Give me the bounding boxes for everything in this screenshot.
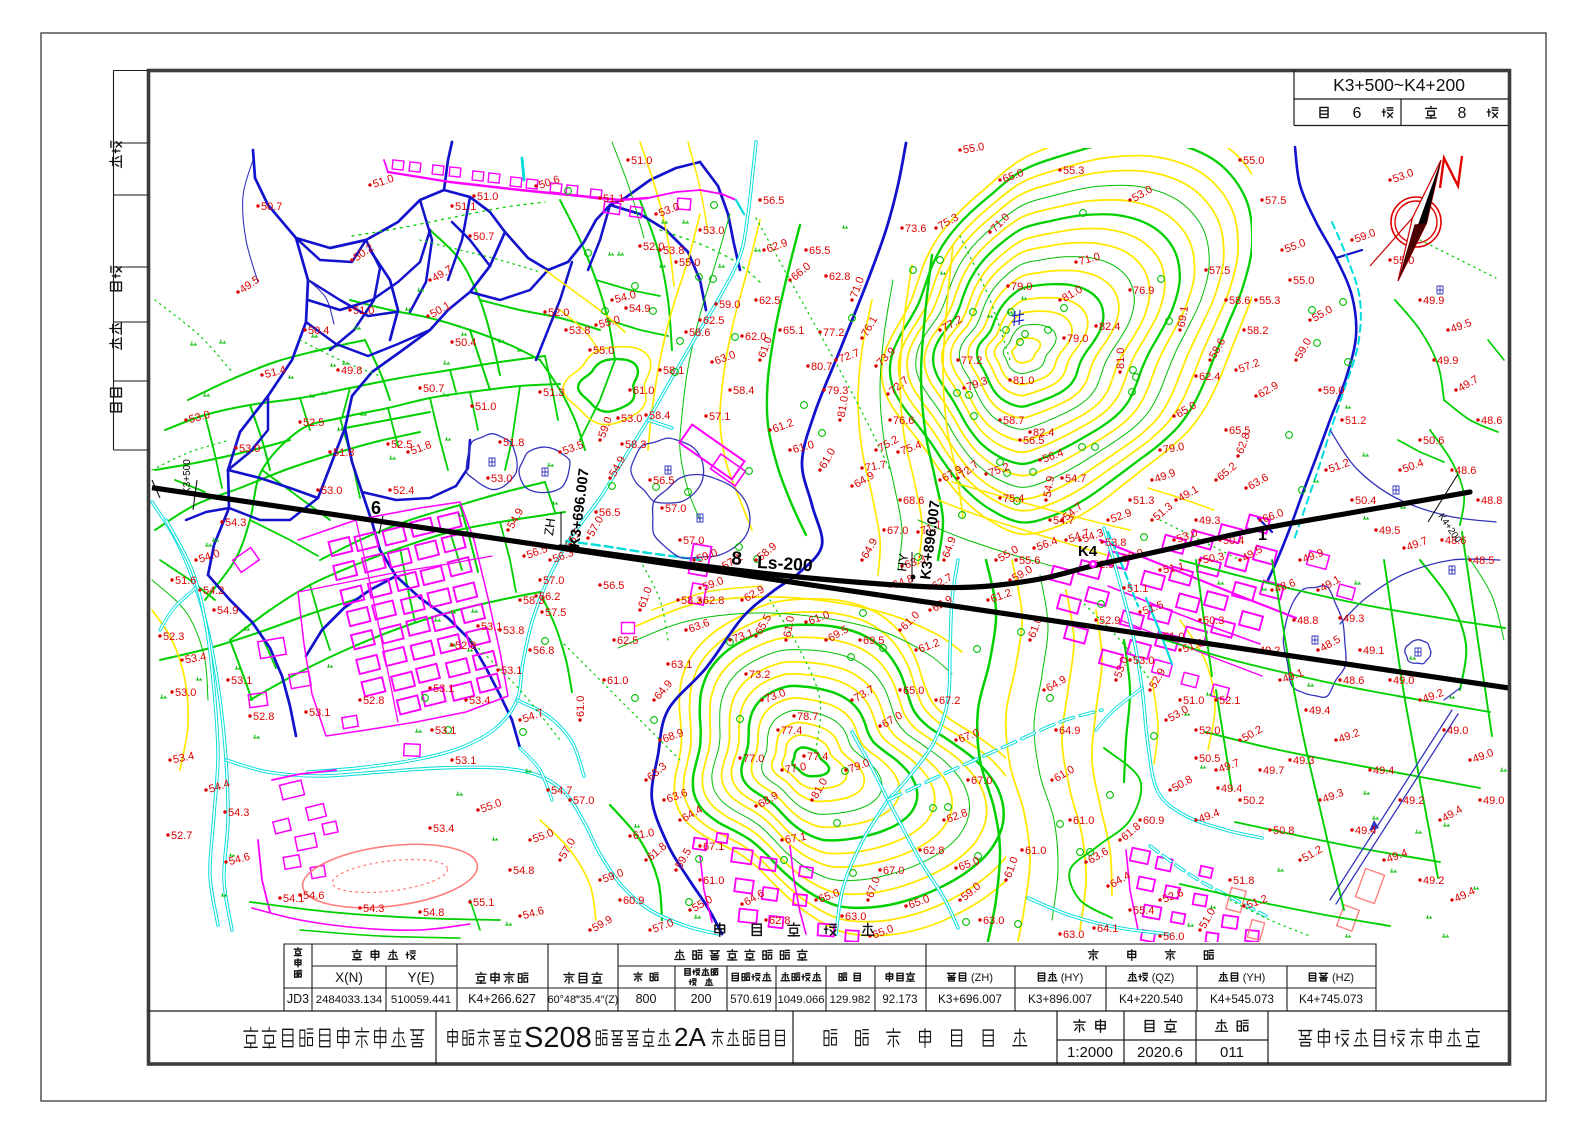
svg-text:67.1: 67.1 <box>703 841 724 853</box>
svg-text:011: 011 <box>1220 1044 1244 1061</box>
svg-text:78.7: 78.7 <box>797 711 818 723</box>
svg-text:51.6: 51.6 <box>175 575 196 587</box>
svg-text:800: 800 <box>636 992 657 1006</box>
svg-text:52.3: 52.3 <box>163 631 184 643</box>
svg-text:53.8: 53.8 <box>1105 537 1126 549</box>
svg-text:56.5: 56.5 <box>1023 435 1044 447</box>
svg-text:129.982: 129.982 <box>830 994 871 1006</box>
svg-text:58.6: 58.6 <box>1229 295 1250 307</box>
svg-text:58.2: 58.2 <box>1247 325 1268 337</box>
svg-text:79.3: 79.3 <box>827 385 848 397</box>
svg-text:57.5: 57.5 <box>1265 195 1286 207</box>
svg-text:54.7: 54.7 <box>551 785 572 797</box>
svg-text:52.4: 52.4 <box>393 485 414 497</box>
svg-text:48.8: 48.8 <box>1481 495 1502 507</box>
svg-text:62.8: 62.8 <box>703 595 724 607</box>
svg-text:54.8: 54.8 <box>513 865 534 877</box>
svg-text:53.1: 53.1 <box>481 621 502 633</box>
svg-text:55.3: 55.3 <box>1063 165 1084 177</box>
svg-text:51.0: 51.0 <box>631 155 652 167</box>
svg-text:54.8: 54.8 <box>423 907 444 919</box>
svg-text:49.9: 49.9 <box>1423 295 1444 307</box>
svg-text:67.2: 67.2 <box>939 695 960 707</box>
svg-text:(ZH): (ZH) <box>971 972 993 984</box>
svg-text:53.0: 53.0 <box>491 473 512 485</box>
svg-text:59.0: 59.0 <box>1323 385 1344 397</box>
svg-text:76.9: 76.9 <box>1133 285 1154 297</box>
svg-text:56.5: 56.5 <box>599 507 620 519</box>
svg-text:76.6: 76.6 <box>893 415 914 427</box>
svg-text:2484033.134: 2484033.134 <box>316 994 383 1006</box>
svg-text:52.8: 52.8 <box>253 711 274 723</box>
svg-text:53.0: 53.0 <box>239 443 260 455</box>
svg-text:Y(E): Y(E) <box>408 970 435 985</box>
svg-text:54.7: 54.7 <box>1065 473 1086 485</box>
svg-text:K4: K4 <box>1078 543 1098 560</box>
svg-text:1: 1 <box>1258 527 1267 544</box>
svg-text:55.0: 55.0 <box>679 257 700 269</box>
svg-text:77.4: 77.4 <box>781 725 802 737</box>
svg-text:48.5: 48.5 <box>1473 555 1494 567</box>
svg-text:51.3: 51.3 <box>543 387 564 399</box>
svg-text:58.3: 58.3 <box>523 595 544 607</box>
svg-text:65.0: 65.0 <box>903 685 924 697</box>
svg-text:62.5: 62.5 <box>617 635 638 647</box>
svg-text:48.6: 48.6 <box>1343 675 1364 687</box>
svg-text:54.3: 54.3 <box>363 903 384 915</box>
svg-text:K3+696.007: K3+696.007 <box>938 992 1002 1006</box>
svg-text:57.5: 57.5 <box>545 607 566 619</box>
svg-text:2020.6: 2020.6 <box>1137 1044 1183 1061</box>
svg-text:64.9: 64.9 <box>1059 725 1080 737</box>
svg-text:69.5: 69.5 <box>863 635 884 647</box>
svg-text:52.9: 52.9 <box>1099 615 1120 627</box>
svg-text:51.0: 51.0 <box>477 191 498 203</box>
svg-text:59.0: 59.0 <box>719 299 740 311</box>
svg-text:55.4: 55.4 <box>1133 905 1154 917</box>
svg-text:K3+896.007: K3+896.007 <box>1028 992 1092 1006</box>
svg-text:58.3: 58.3 <box>625 439 646 451</box>
svg-text:49.8: 49.8 <box>341 365 362 377</box>
svg-text:51.0: 51.0 <box>475 401 496 413</box>
svg-text:K3+500: K3+500 <box>182 459 193 494</box>
svg-text:55.3: 55.3 <box>1259 295 1280 307</box>
svg-text:56.0: 56.0 <box>1163 931 1184 943</box>
svg-text:49.2: 49.2 <box>1403 795 1424 807</box>
svg-text:53.1: 53.1 <box>501 665 522 677</box>
svg-text:Ls-200: Ls-200 <box>757 552 814 575</box>
svg-text:49.4: 49.4 <box>1221 783 1242 795</box>
svg-text:65.1: 65.1 <box>783 325 804 337</box>
svg-text:53.8: 53.8 <box>569 325 590 337</box>
svg-text:57.0: 57.0 <box>573 795 594 807</box>
svg-text:50.2: 50.2 <box>1243 795 1264 807</box>
svg-text:51.8: 51.8 <box>503 437 524 449</box>
svg-text:54.3: 54.3 <box>228 807 249 819</box>
svg-text:53.1: 53.1 <box>455 755 476 767</box>
svg-text:6: 6 <box>371 498 381 518</box>
svg-text:52.8: 52.8 <box>455 640 476 652</box>
svg-text:50.7: 50.7 <box>423 383 444 395</box>
svg-text:60°48‴35.4″(Z): 60°48‴35.4″(Z) <box>548 994 619 1006</box>
svg-text:61.0: 61.0 <box>575 696 587 717</box>
svg-text:50.4: 50.4 <box>308 325 329 337</box>
svg-text:77.2: 77.2 <box>961 355 982 367</box>
svg-text:55.0: 55.0 <box>1243 155 1264 167</box>
svg-text:77.4: 77.4 <box>807 751 828 763</box>
svg-text:K4+545.073: K4+545.073 <box>1210 992 1274 1006</box>
svg-text:53.0: 53.0 <box>621 413 642 425</box>
svg-text:56.5: 56.5 <box>653 475 674 487</box>
svg-text:57.0: 57.0 <box>683 535 704 547</box>
svg-text:50.4: 50.4 <box>1355 495 1376 507</box>
svg-text:63.0: 63.0 <box>983 915 1004 927</box>
svg-text:200: 200 <box>691 992 712 1006</box>
svg-text:ZH: ZH <box>541 517 558 536</box>
svg-text:60.9: 60.9 <box>1143 815 1164 827</box>
svg-text:55.6: 55.6 <box>1019 555 1040 567</box>
svg-text:50.7: 50.7 <box>261 201 282 213</box>
svg-text:52.8: 52.8 <box>363 695 384 707</box>
svg-text:54.2: 54.2 <box>203 585 224 597</box>
svg-text:65.5: 65.5 <box>809 245 830 257</box>
svg-text:49.3: 49.3 <box>1343 613 1364 625</box>
svg-text:62.8: 62.8 <box>829 271 850 283</box>
svg-text:57.1: 57.1 <box>709 411 730 423</box>
svg-text:50.5: 50.5 <box>1199 753 1220 765</box>
svg-text:48.6: 48.6 <box>1481 415 1502 427</box>
svg-text:63.0: 63.0 <box>845 911 866 923</box>
svg-text:54.9: 54.9 <box>217 605 238 617</box>
svg-text:67.0: 67.0 <box>887 525 908 537</box>
svg-text:54.6: 54.6 <box>303 890 324 902</box>
svg-text:51.1: 51.1 <box>603 193 624 205</box>
svg-text:53.1: 53.1 <box>435 725 456 737</box>
svg-text:67.0: 67.0 <box>883 865 904 877</box>
svg-text:81.0: 81.0 <box>1115 348 1127 369</box>
svg-text:58.4: 58.4 <box>733 385 754 397</box>
svg-text:52.5: 52.5 <box>303 417 324 429</box>
svg-text:53.1: 53.1 <box>231 675 252 687</box>
svg-text:55.1: 55.1 <box>473 897 494 909</box>
svg-text:K4+266.627: K4+266.627 <box>468 992 536 1006</box>
svg-text:77.2: 77.2 <box>823 327 844 339</box>
svg-text:82.4: 82.4 <box>1099 321 1120 333</box>
svg-text:68.6: 68.6 <box>903 495 924 507</box>
svg-text:52.0: 52.0 <box>1199 725 1220 737</box>
svg-text:49.4: 49.4 <box>1373 765 1394 777</box>
svg-text:55.0: 55.0 <box>1293 275 1314 287</box>
svg-text:49.7: 49.7 <box>1263 765 1284 777</box>
svg-text:57.5: 57.5 <box>1209 265 1230 277</box>
svg-text:92.173: 92.173 <box>882 994 917 1006</box>
svg-text:49.3: 49.3 <box>1293 755 1314 767</box>
svg-text:49.2: 49.2 <box>1423 875 1444 887</box>
svg-text:50.3: 50.3 <box>1203 615 1224 627</box>
svg-text:50.8: 50.8 <box>1273 825 1294 837</box>
svg-text:80.7: 80.7 <box>811 361 832 373</box>
svg-text:6: 6 <box>1353 105 1362 122</box>
svg-text:K3+500~K4+200: K3+500~K4+200 <box>1333 75 1465 95</box>
svg-text:62.8: 62.8 <box>923 845 944 857</box>
svg-text:54.3: 54.3 <box>225 517 246 529</box>
svg-text:58.1: 58.1 <box>663 365 684 377</box>
svg-text:67.0: 67.0 <box>971 775 992 787</box>
svg-text:53.1: 53.1 <box>433 683 454 695</box>
svg-text:52.7: 52.7 <box>171 830 192 842</box>
svg-text:79.0: 79.0 <box>1067 333 1088 345</box>
svg-text:58.4: 58.4 <box>649 410 670 422</box>
svg-text:53.4: 53.4 <box>469 695 490 707</box>
svg-text:58.7: 58.7 <box>1003 415 1024 427</box>
svg-text:62.5: 62.5 <box>703 315 724 327</box>
svg-text:49.4: 49.4 <box>1309 705 1330 717</box>
svg-text:HY: HY <box>894 552 911 572</box>
svg-text:53.0: 53.0 <box>1133 655 1154 667</box>
svg-text:570.619: 570.619 <box>730 994 772 1006</box>
svg-text:52.0: 52.0 <box>548 307 569 319</box>
svg-text:61.0: 61.0 <box>1025 845 1046 857</box>
svg-text:52.1: 52.1 <box>1219 695 1240 707</box>
svg-text:(HZ): (HZ) <box>1332 972 1354 984</box>
svg-text:X(N): X(N) <box>335 970 363 985</box>
svg-text:63.0: 63.0 <box>1063 929 1084 941</box>
svg-text:51.2: 51.2 <box>1345 415 1366 427</box>
svg-text:53.0: 53.0 <box>321 485 342 497</box>
svg-text:77.0: 77.0 <box>743 753 764 765</box>
svg-text:(HY): (HY) <box>1061 972 1084 984</box>
svg-text:51.1: 51.1 <box>455 201 476 213</box>
svg-text:49.0: 49.0 <box>1447 725 1468 737</box>
svg-text:50.6: 50.6 <box>1423 435 1444 447</box>
svg-text:51.0: 51.0 <box>1183 695 1204 707</box>
svg-text:51.8: 51.8 <box>333 447 354 459</box>
svg-text:56.5: 56.5 <box>763 195 784 207</box>
svg-text:53.4: 53.4 <box>433 823 454 835</box>
svg-text:62.4: 62.4 <box>1199 371 1220 383</box>
svg-text:(YH): (YH) <box>1243 972 1266 984</box>
svg-text:75.4: 75.4 <box>1003 493 1024 505</box>
svg-text:(QZ): (QZ) <box>1152 972 1175 984</box>
svg-text:73.6: 73.6 <box>905 223 926 235</box>
svg-text:55.0: 55.0 <box>593 345 614 357</box>
svg-text:49.0: 49.0 <box>1393 675 1414 687</box>
svg-text:63.1: 63.1 <box>671 659 692 671</box>
svg-text:K4+745.073: K4+745.073 <box>1299 992 1363 1006</box>
svg-text:S208: S208 <box>524 1022 592 1054</box>
svg-text:53.8: 53.8 <box>503 625 524 637</box>
svg-text:1049.066: 1049.066 <box>777 994 824 1006</box>
svg-text:79.0: 79.0 <box>1011 281 1032 293</box>
svg-text:510059.441: 510059.441 <box>391 994 451 1006</box>
svg-text:JD3: JD3 <box>287 992 309 1006</box>
svg-text:2A: 2A <box>674 1022 706 1052</box>
svg-text:61.0: 61.0 <box>607 675 628 687</box>
svg-text:49.4: 49.4 <box>1355 825 1376 837</box>
svg-text:61.0: 61.0 <box>703 875 724 887</box>
svg-text:49.0: 49.0 <box>1483 795 1504 807</box>
svg-text:61.0: 61.0 <box>1073 815 1094 827</box>
svg-text:57.0: 57.0 <box>543 575 564 587</box>
svg-text:1:2000: 1:2000 <box>1067 1044 1113 1061</box>
svg-text:60.9: 60.9 <box>623 895 644 907</box>
svg-text:58.3: 58.3 <box>681 595 702 607</box>
svg-text:62.5: 62.5 <box>759 295 780 307</box>
svg-text:50.4: 50.4 <box>455 337 476 349</box>
svg-text:53.8: 53.8 <box>663 245 684 257</box>
svg-text:53.0: 53.0 <box>703 225 724 237</box>
svg-text:50.7: 50.7 <box>473 231 494 243</box>
svg-text:8: 8 <box>1458 105 1467 122</box>
svg-text:58.6: 58.6 <box>689 327 710 339</box>
svg-text:K4+220.540: K4+220.540 <box>1119 992 1183 1006</box>
svg-text:51.8: 51.8 <box>1233 875 1254 887</box>
svg-text:49.5: 49.5 <box>1379 525 1400 537</box>
svg-text:56.8: 56.8 <box>533 645 554 657</box>
svg-text:51.0: 51.0 <box>353 305 374 317</box>
svg-text:48.6: 48.6 <box>1455 465 1476 477</box>
svg-text:56.5: 56.5 <box>603 580 624 592</box>
svg-text:64.1: 64.1 <box>1097 923 1118 935</box>
svg-text:73.2: 73.2 <box>749 669 770 681</box>
svg-text:53.1: 53.1 <box>309 707 330 719</box>
svg-text:48.8: 48.8 <box>1297 615 1318 627</box>
svg-text:49.1: 49.1 <box>1363 645 1384 657</box>
svg-text:49.3: 49.3 <box>1199 515 1220 527</box>
svg-text:52.0: 52.0 <box>643 241 664 253</box>
svg-text:81.0: 81.0 <box>1013 375 1034 387</box>
svg-text:49.9: 49.9 <box>1437 355 1458 367</box>
svg-text:53.0: 53.0 <box>175 687 196 699</box>
svg-text:54.9: 54.9 <box>629 303 650 315</box>
svg-text:51.1: 51.1 <box>1127 583 1148 595</box>
svg-text:61.0: 61.0 <box>633 385 654 397</box>
svg-text:51.3: 51.3 <box>1133 495 1154 507</box>
svg-text:57.0: 57.0 <box>665 503 686 515</box>
svg-text:8: 8 <box>731 548 743 570</box>
